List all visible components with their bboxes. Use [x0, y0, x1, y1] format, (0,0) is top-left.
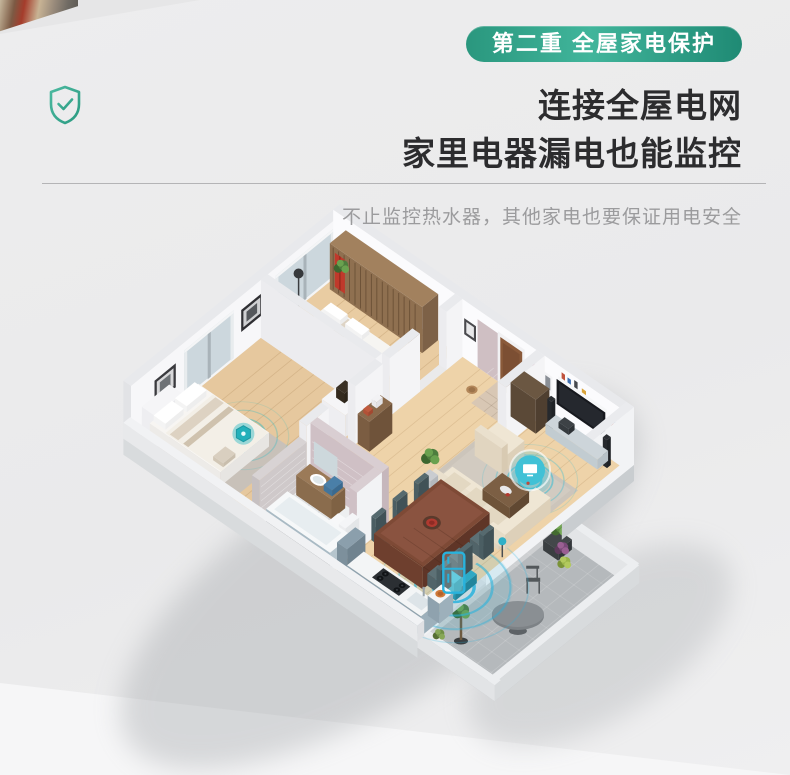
section-heading: 连接全屋电网 家里电器漏电也能监控 [402, 82, 742, 178]
promo-section: 第二重 全屋家电保护 连接全屋电网 家里电器漏电也能监控 不止监控热水器，其他家… [0, 0, 790, 775]
shield-check-icon [46, 84, 84, 126]
heading-line-2: 家里电器漏电也能监控 [402, 130, 742, 178]
heading-line-1: 连接全屋电网 [402, 82, 742, 130]
divider-line [42, 183, 766, 184]
section-subtitle: 不止监控热水器，其他家电也要保证用电安全 [342, 202, 742, 229]
section-badge: 第二重 全屋家电保护 [466, 26, 742, 62]
